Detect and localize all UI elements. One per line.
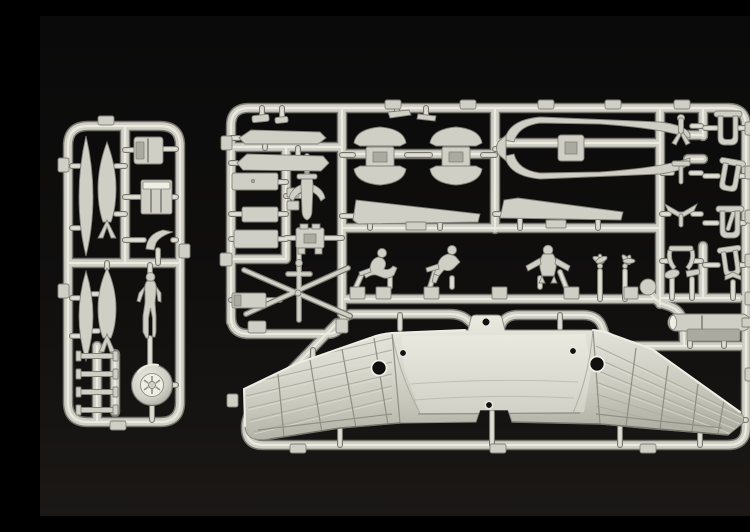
wheel-part (132, 365, 173, 406)
wing-center-bay (402, 334, 592, 413)
round-gate-node (640, 279, 656, 295)
model-kit-sprues-photo (40, 16, 750, 516)
tab-hole (483, 319, 489, 325)
engine-block-part (141, 180, 172, 214)
cowling-block-part (134, 137, 163, 164)
kit-photo-canvas (40, 16, 750, 516)
